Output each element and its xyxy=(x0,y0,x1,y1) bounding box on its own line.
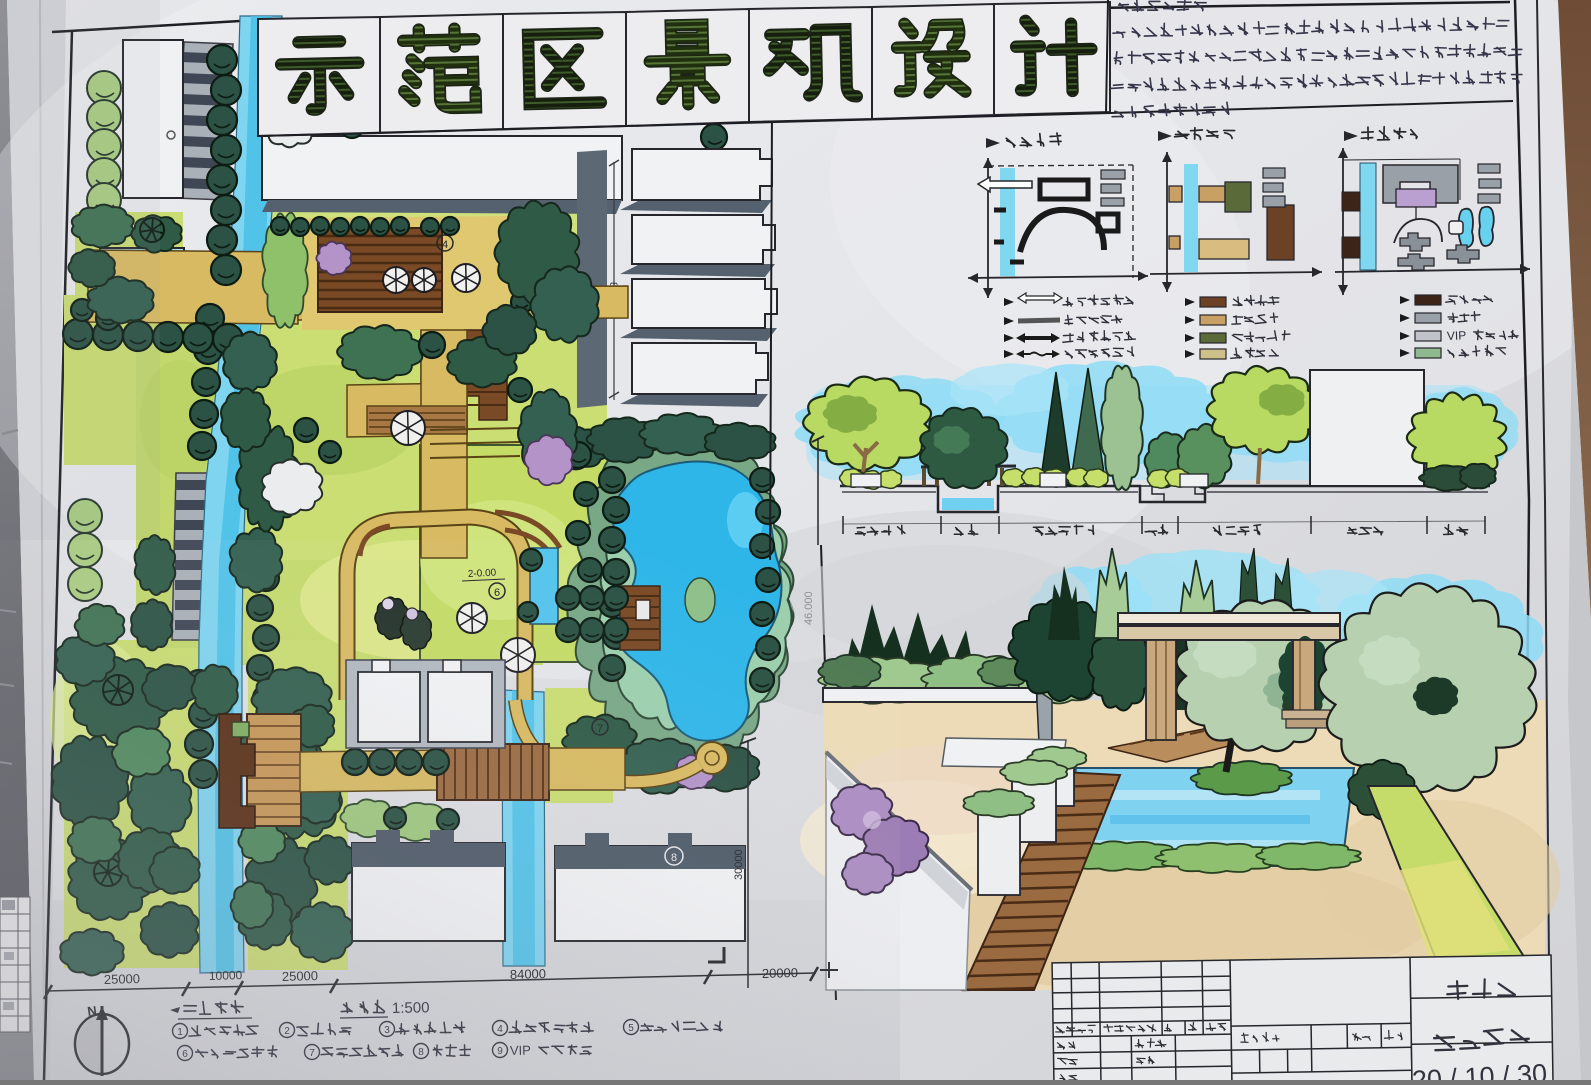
svg-text:4: 4 xyxy=(442,239,448,251)
svg-text:VIP: VIP xyxy=(1447,328,1467,343)
